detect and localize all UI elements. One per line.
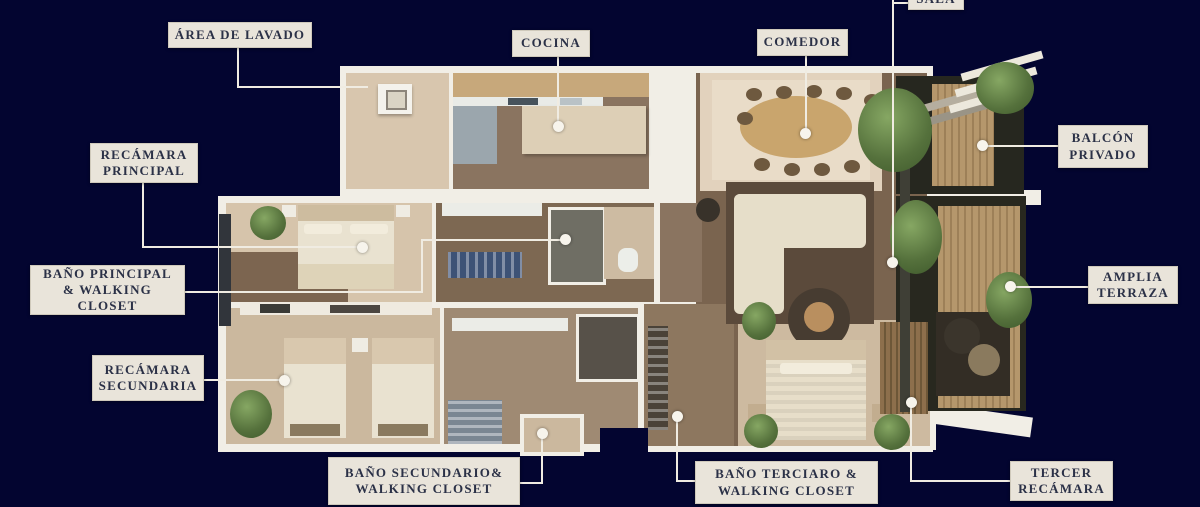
label-bano-terciario: BAÑO TERCIARO & WALKING CLOSET [695,461,878,504]
leader-amplia-terraza-h [1012,286,1088,288]
leader-bano-terciario-v [676,417,678,482]
leader-comedor-v [805,56,807,134]
leader-cocina-dot [553,121,564,132]
leader-balcon-h [984,145,1058,147]
third-bath-shelf [648,326,668,430]
leader-recamara-principal-v [142,183,144,248]
leader-tercer-recamara-v [910,403,912,482]
twin-bed-1-rug [290,424,340,436]
master-toilet [618,248,638,272]
twin-bed-2-headboard [372,338,434,364]
leader-bano-secundario-dot [537,428,548,439]
master-bed-pillow-1 [304,224,342,234]
leader-bano-secundario-h [520,482,543,484]
leader-bano-terciario-dot [672,411,683,422]
kitchen-sink [560,98,582,105]
third-bed-pillow [780,363,852,374]
room-hallway [660,203,702,302]
secondary-nightstand [352,338,368,352]
label-bano-secundario: BAÑO SECUNDARIO& WALKING CLOSET [328,457,520,505]
leader-bano-principal-h1 [185,291,423,293]
kitchen-upper-cabinets [453,73,649,97]
label-amplia-terraza: AMPLIA TERRAZA [1088,266,1178,304]
leader-tercer-recamara-dot [906,397,917,408]
leader-bano-principal-h2 [421,239,567,241]
kitchen-stove [508,98,538,105]
leader-recamara-secundaria-h [204,379,286,381]
secondary-shelf-items-2 [330,305,380,313]
label-tercer-recamara: TERCER RECÁMARA [1010,461,1113,501]
master-bed-blanket [298,264,394,289]
twin-bed-2-rug [378,424,428,436]
floor-lamp [696,198,720,222]
master-window [219,214,231,326]
terrace-lounge-chair-2 [968,344,1000,376]
floor-plan-canvas: ÁREA DE LAVADO COCINA COMEDOR SALA BALCÓ… [0,0,1200,507]
secondary-towel-shelf [448,400,502,444]
label-cocina: COCINA [512,30,590,57]
washing-machine-door [386,90,407,110]
master-bed-headboard [298,205,394,221]
dining-chairs [746,88,762,101]
third-plant-2 [874,414,910,450]
label-sala: SALA [908,0,964,10]
label-comedor: COMEDOR [757,29,848,56]
leader-bano-terciario-h [676,480,695,482]
leader-bano-secundario-v [541,434,543,484]
third-plant-1 [744,414,778,448]
living-plant [742,302,776,340]
balcony-bush-right [976,62,1034,114]
leader-area-de-lavado-v [237,48,239,88]
label-bano-principal: BAÑO PRINCIPAL & WALKING CLOSET [30,265,185,315]
leader-balcon-dot [977,140,988,151]
coffee-table-wood [804,302,834,332]
entrance-notch [600,428,648,454]
leader-bano-principal-dot [560,234,571,245]
third-bed-headboard [766,340,866,360]
master-bath-vanity [442,203,542,216]
label-recamara-principal: RECÁMARA PRINCIPAL [90,143,198,183]
sofa-chaise [734,194,784,314]
kitchen-island [522,106,646,154]
master-plant [250,206,286,240]
secondary-shelf-items-1 [260,304,290,313]
leader-sala-v [892,0,894,262]
secondary-plant [230,390,272,438]
leader-cocina-v [557,57,559,127]
master-bed-pillow-2 [350,224,388,234]
master-nightstand-2 [396,205,410,217]
leader-comedor-dot [800,128,811,139]
leader-recamara-secundaria-dot [279,375,290,386]
walking-closet-shelf [448,252,522,278]
label-area-de-lavado: ÁREA DE LAVADO [168,22,312,48]
leader-sala-dot [887,257,898,268]
twin-bed-1-headboard [284,338,346,364]
master-shower [548,207,606,285]
kitchen-lower-cabinet [453,106,497,164]
leader-recamara-principal-dot [357,242,368,253]
label-balcon-privado: BALCÓN PRIVADO [1058,125,1148,168]
leader-amplia-terraza-dot [1005,281,1016,292]
leader-recamara-principal-h [142,246,363,248]
balcony-bush-left [858,88,932,172]
secondary-bath-vanity [452,318,568,331]
label-recamara-secundaria: RECÁMARA SECUNDARIA [92,355,204,401]
secondary-shower [576,314,640,382]
leader-area-de-lavado-h [237,86,368,88]
leader-bano-principal-v [421,239,423,293]
leader-tercer-recamara-h [910,480,1010,482]
dining-table [740,96,852,158]
secondary-closet-alcove [520,414,584,456]
